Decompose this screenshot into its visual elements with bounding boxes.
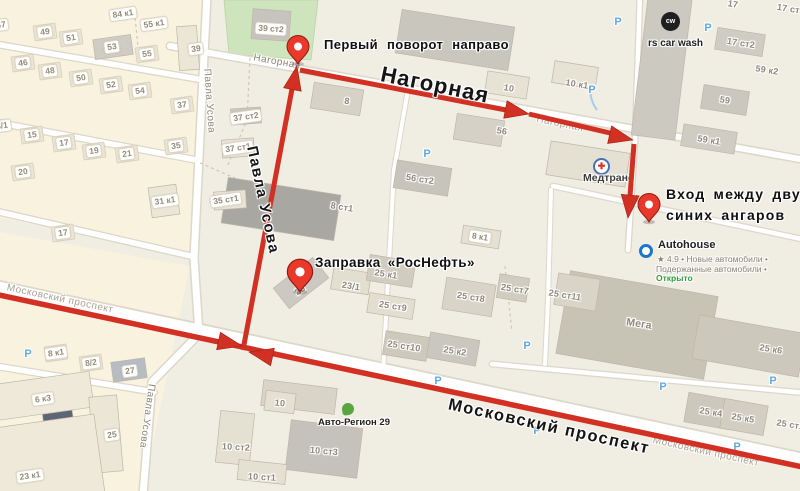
annotation-gas-station: Заправка «РосНефть»: [315, 255, 475, 270]
annotation-entrance: Вход между двух синих ангаров: [666, 184, 800, 226]
annotation-first-turn: Первый поворот направо: [324, 37, 509, 52]
annotation-entrance-line1: Вход между двух: [666, 184, 800, 205]
map-canvas[interactable]: 4784 к155 к14951535546485052543937353/11…: [0, 0, 800, 491]
annotation-entrance-line2: синих ангаров: [666, 205, 800, 226]
